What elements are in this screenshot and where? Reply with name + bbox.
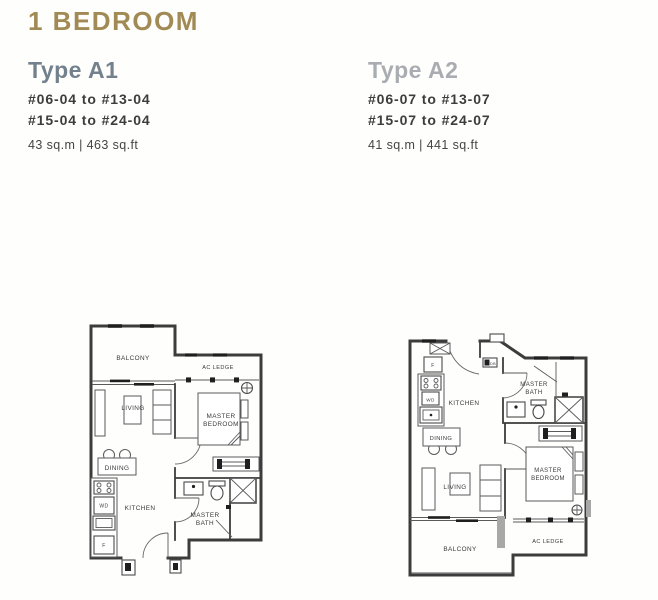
room-label-balcony: BALCONY (443, 546, 477, 553)
window-mullion (234, 377, 239, 382)
bed (526, 447, 573, 501)
tv-console (422, 468, 435, 510)
sofa (480, 465, 501, 511)
room-label-master-bath: BATH (525, 390, 542, 396)
window-mullion (210, 377, 215, 382)
crosshair-marker-icon (241, 382, 253, 394)
entry-door-arc (447, 342, 479, 374)
type-a1-units-line1: #06-04 to #13-04 (28, 91, 298, 107)
bath-sink (507, 402, 525, 417)
db-label: DB (490, 362, 496, 366)
room-label-master-bedroom: MASTER (534, 468, 562, 474)
type-a2-units-line1: #06-07 to #13-07 (368, 91, 638, 107)
window-tick (185, 353, 197, 356)
shower-screen (534, 366, 557, 382)
room-label-kitchen: KITCHEN (125, 505, 156, 512)
appliance-label-wd: WD (426, 398, 435, 403)
tv-console (95, 390, 105, 436)
floorplan-type-a1: BALCONY AC LEDGE LIVING MASTER BEDROOM D… (58, 310, 290, 600)
window-mullion (548, 518, 553, 523)
wall-bump (586, 500, 591, 517)
appliance-label-fridge: F (431, 363, 434, 369)
sliding-door-panel (110, 380, 130, 383)
wardrobe (213, 457, 259, 471)
room-label-kitchen: KITCHEN (449, 400, 480, 407)
room-label-master-bath: MASTER (190, 512, 219, 519)
type-a2-heading: Type A2 (368, 57, 638, 84)
type-a1-heading: Type A1 (28, 57, 298, 84)
room-label-living: LIVING (121, 405, 144, 412)
window-mullion (526, 518, 531, 523)
type-a1-info-block: Type A1 #06-04 to #13-04 #15-04 to #24-0… (28, 57, 298, 152)
nightstand (241, 422, 248, 440)
vent-tick (226, 505, 231, 509)
type-a1-units-line2: #15-04 to #24-04 (28, 112, 298, 128)
appliance-label-fridge: F (102, 543, 105, 549)
appliance-label-wd: WD (99, 504, 108, 510)
nightstand (575, 452, 583, 471)
room-label-balcony: BALCONY (116, 355, 150, 362)
nightstand (241, 400, 248, 418)
shaft-cross-box (230, 478, 256, 503)
window-tick (560, 356, 574, 359)
wardrobe (539, 426, 582, 441)
vent-tick (562, 393, 568, 397)
window-mullion (186, 377, 191, 382)
type-a2-info-block: Type A2 #06-07 to #13-07 #15-07 to #24-0… (368, 57, 638, 152)
toilet (209, 481, 225, 500)
window-tick (213, 353, 227, 356)
wall-pillar (497, 516, 505, 548)
sliding-door-panel (134, 383, 154, 386)
sliding-door (92, 381, 175, 385)
nightstand (575, 475, 583, 494)
room-label-master-bedroom: BEDROOM (531, 476, 565, 482)
bedroom-door-arc (175, 438, 201, 464)
sliding-door-panel (428, 516, 450, 519)
type-a1-area: 43 sq.m | 463 sq.ft (28, 138, 298, 152)
window-tick (422, 339, 436, 342)
room-label-ac-ledge: AC LEDGE (532, 539, 564, 545)
room-label-dining: DINING (430, 436, 453, 442)
window-tick (140, 324, 154, 328)
room-label-master-bedroom: BEDROOM (203, 421, 239, 428)
room-label-living: LIVING (443, 484, 466, 491)
toilet (531, 400, 546, 419)
bath-sink (184, 482, 203, 495)
window-tick (534, 356, 548, 359)
type-a2-units-line2: #15-07 to #24-07 (368, 112, 638, 128)
type-a2-area: 41 sq.m | 441 sq.ft (368, 138, 638, 152)
floorplan-brochure-page: 1 BEDROOM Type A1 #06-04 to #13-04 #15-0… (0, 0, 658, 600)
room-label-ac-ledge: AC LEDGE (202, 365, 234, 371)
room-label-master-bath: MASTER (520, 382, 548, 388)
room-label-master-bedroom: MASTER (206, 413, 235, 420)
crosshair-marker-icon (572, 505, 583, 516)
wall-bump (490, 334, 504, 342)
entry-door-arc (143, 533, 168, 558)
room-label-master-bath: BATH (196, 520, 214, 527)
shaft-cross-box (555, 397, 583, 423)
entry-door-frame (122, 560, 181, 575)
window-tick (108, 324, 122, 328)
window-mullion (568, 518, 573, 523)
room-label-dining: DINING (105, 465, 130, 472)
floorplan-type-a2: DB F WD (398, 330, 598, 582)
page-title: 1 BEDROOM (28, 6, 199, 37)
sliding-door-panel (456, 519, 478, 522)
overhead-cabinet (430, 343, 450, 354)
sofa (153, 390, 171, 434)
